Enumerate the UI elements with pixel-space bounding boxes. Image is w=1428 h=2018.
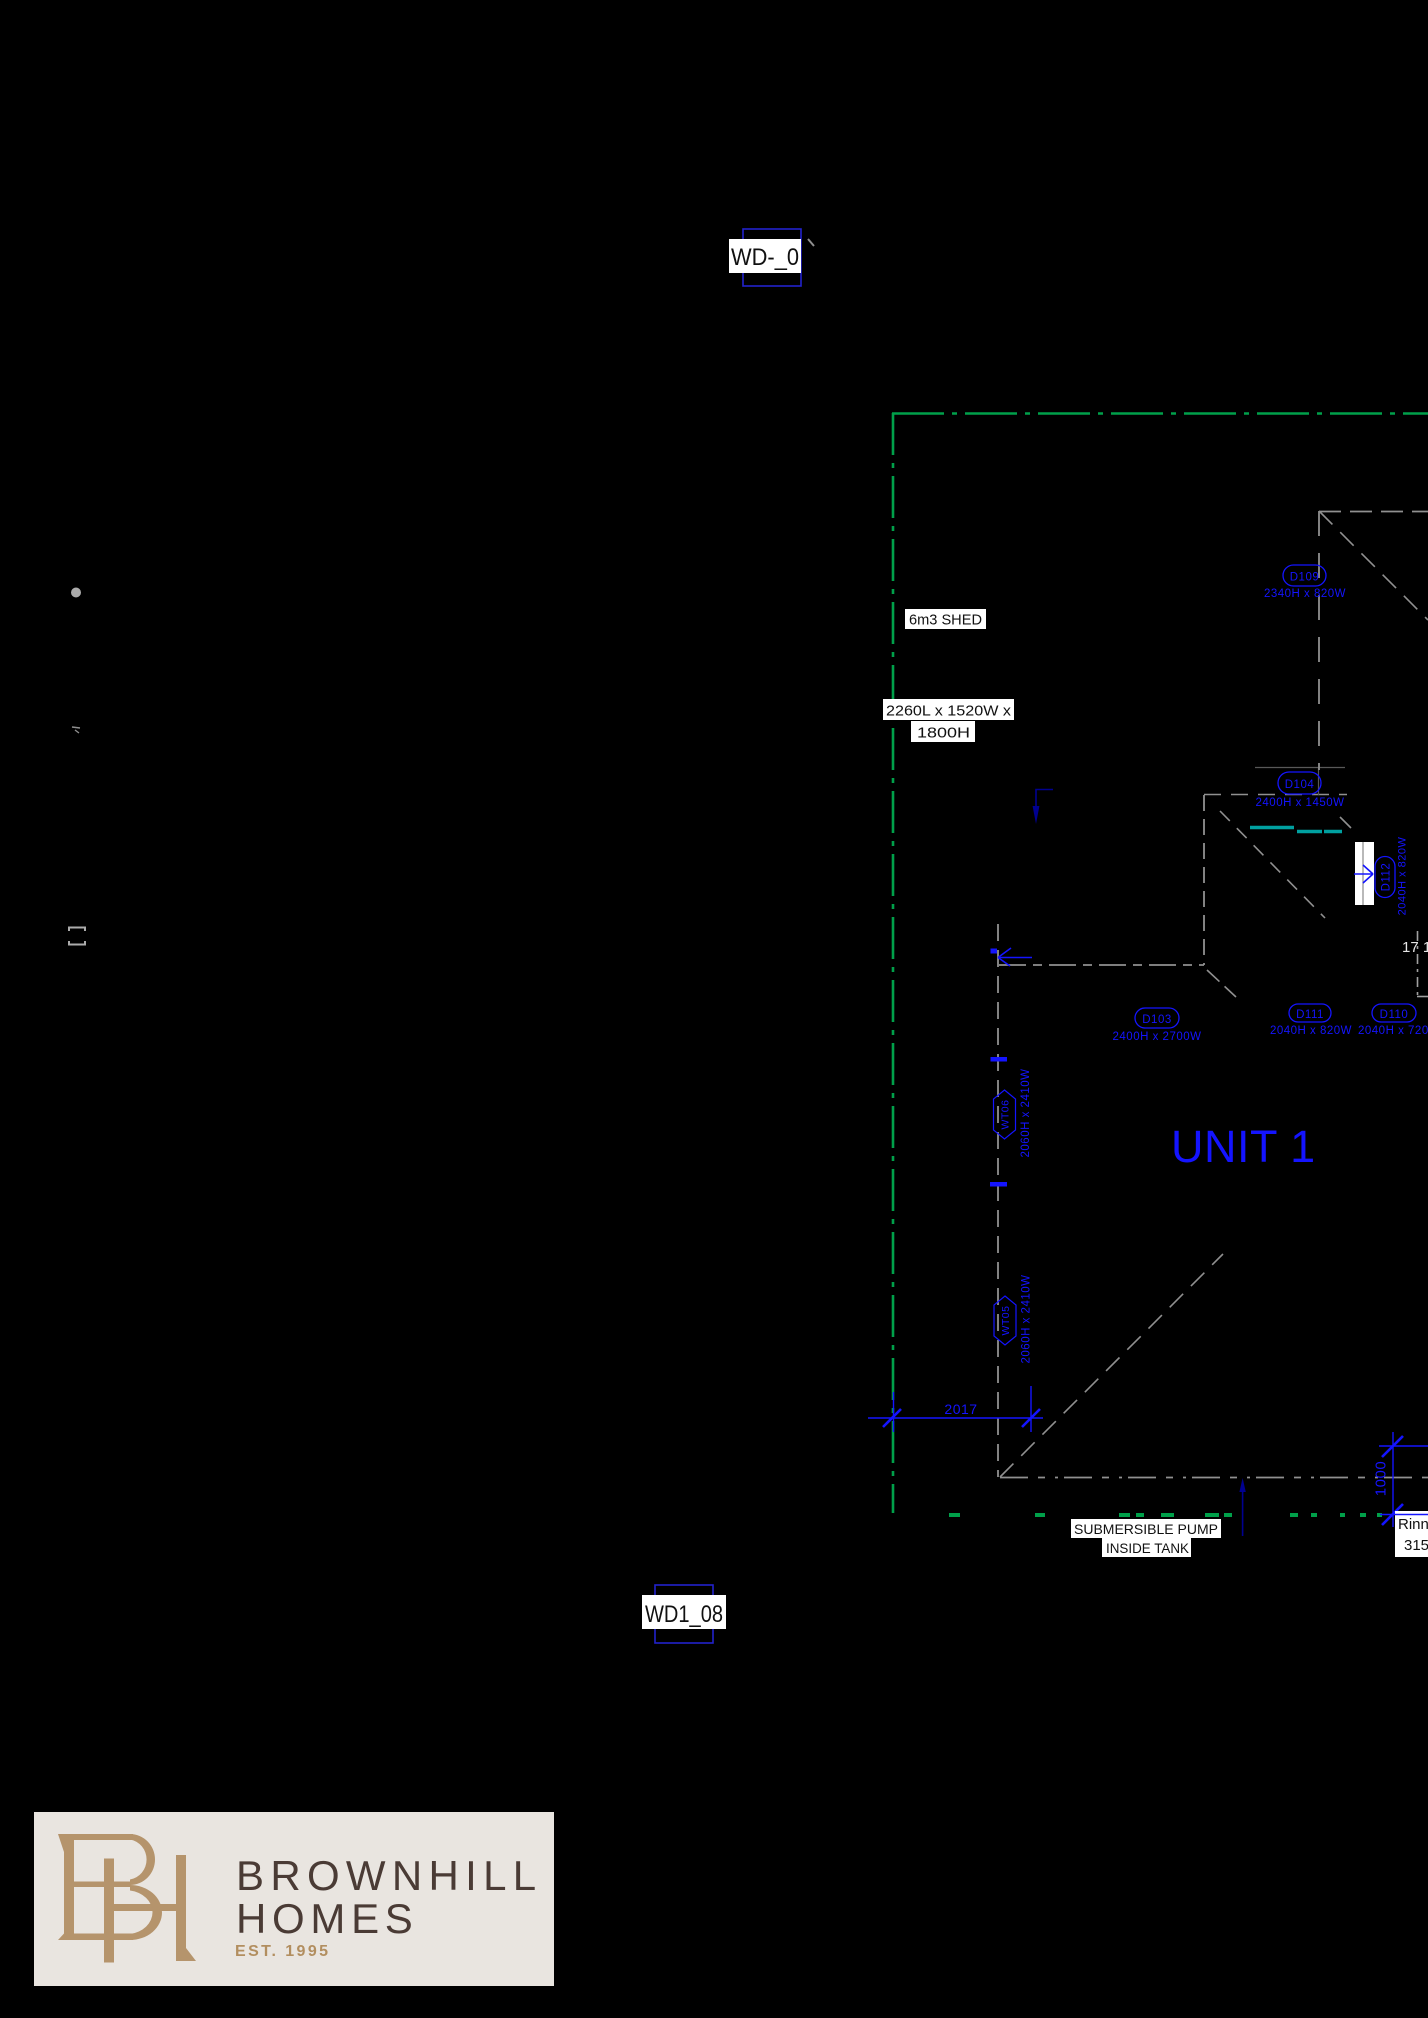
svg-text:2040H x 820W: 2040H x 820W <box>1397 837 1409 916</box>
svg-text:2040H x 820W: 2040H x 820W <box>1270 1025 1352 1037</box>
svg-text:2400H x 1450W: 2400H x 1450W <box>1256 797 1345 809</box>
svg-text:1800H: 1800H <box>917 725 970 742</box>
svg-text:WD1_08: WD1_08 <box>645 1601 723 1628</box>
svg-text:6m3 SHED: 6m3 SHED <box>909 612 982 629</box>
svg-text:INSIDE TANK: INSIDE TANK <box>1106 1540 1190 1556</box>
svg-text:2040H x 720W: 2040H x 720W <box>1358 1025 1428 1037</box>
svg-text:D112: D112 <box>1381 863 1393 892</box>
svg-text:2260L x 1520W x: 2260L x 1520W x <box>886 703 1012 720</box>
svg-text:UNIT 1: UNIT 1 <box>1171 1121 1316 1172</box>
svg-text:WT05: WT05 <box>1000 1305 1012 1335</box>
svg-text:2060H x 2410W: 2060H x 2410W <box>1021 1275 1033 1364</box>
svg-text:WD-_0: WD-_0 <box>731 244 799 271</box>
svg-text:2340H x 820W: 2340H x 820W <box>1264 588 1346 600</box>
svg-text:2017: 2017 <box>944 1401 977 1417</box>
svg-text:WT06: WT06 <box>1000 1099 1012 1129</box>
svg-text:1000: 1000 <box>1373 1461 1390 1496</box>
svg-text:D104: D104 <box>1285 779 1315 791</box>
svg-text:SUBMERSIBLE PUMP: SUBMERSIBLE PUMP <box>1074 1521 1218 1537</box>
svg-text:Rinna: Rinna <box>1398 1516 1428 1533</box>
svg-text:2060H x 2410W: 2060H x 2410W <box>1020 1069 1032 1158</box>
svg-text:315: 315 <box>1404 1537 1428 1554</box>
svg-text:17 165: 17 165 <box>1402 939 1428 956</box>
svg-text:2400H x 2700W: 2400H x 2700W <box>1113 1031 1202 1043</box>
svg-text:D109: D109 <box>1290 572 1320 584</box>
svg-text:D103: D103 <box>1142 1014 1172 1026</box>
svg-text:D111: D111 <box>1296 1009 1324 1021</box>
svg-text:D110: D110 <box>1380 1009 1409 1021</box>
